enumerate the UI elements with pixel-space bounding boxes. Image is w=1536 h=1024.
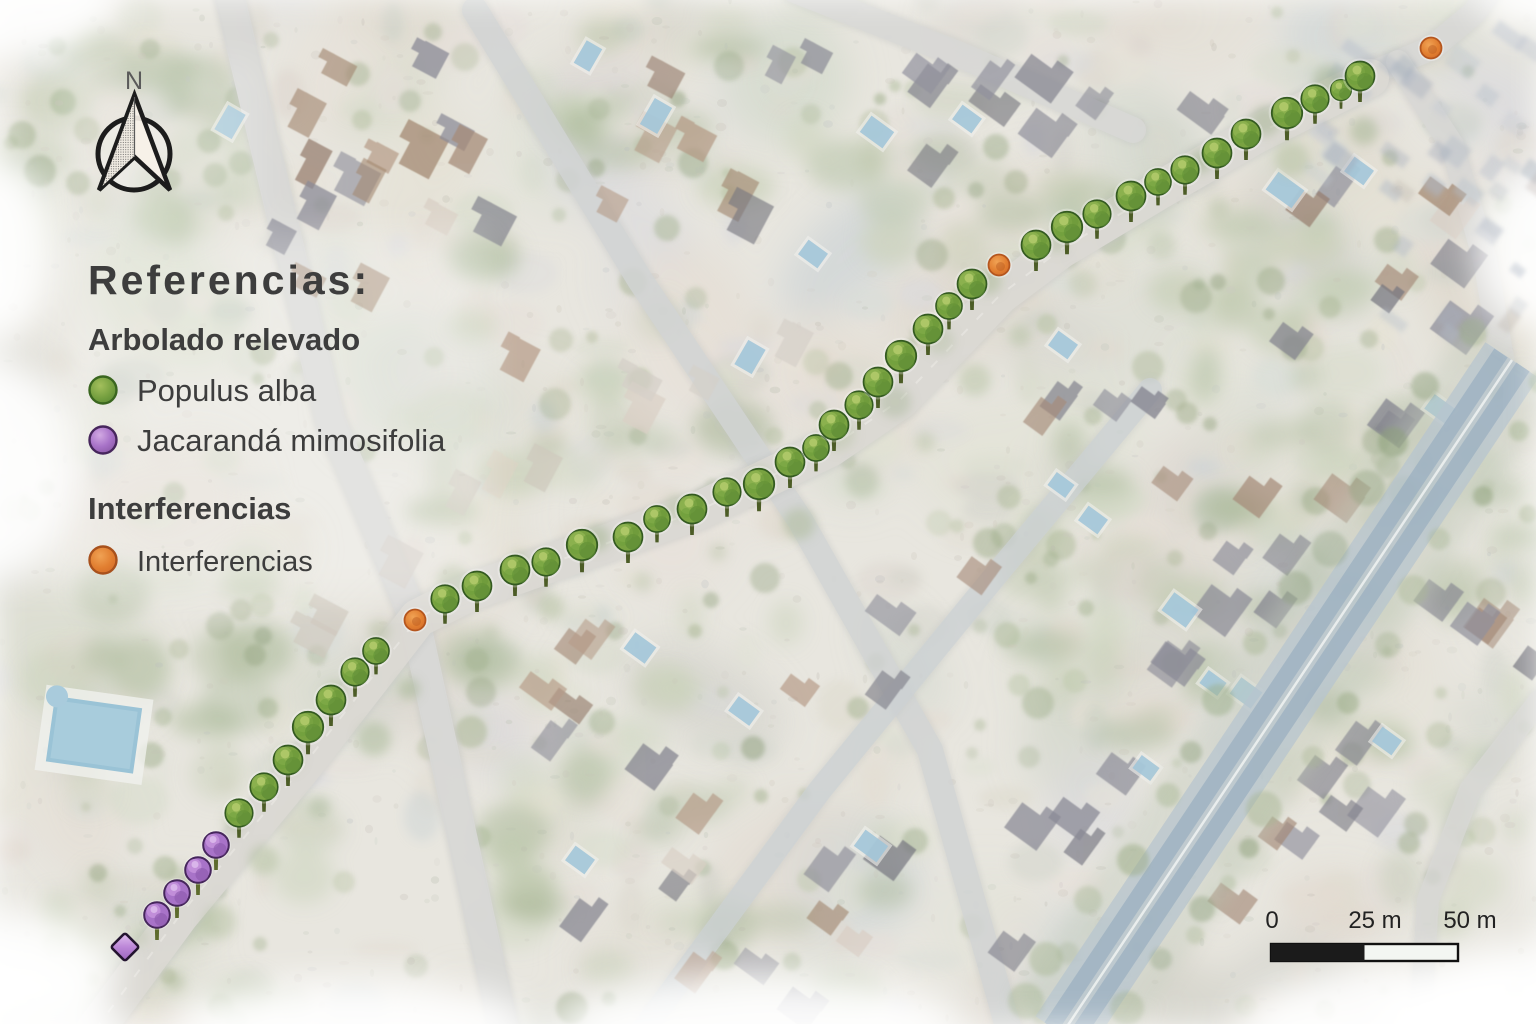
svg-text:Referencias:: Referencias:	[88, 257, 370, 303]
svg-text:Jacarandá mimosifolia: Jacarandá mimosifolia	[137, 423, 446, 458]
svg-text:Interferencias: Interferencias	[88, 491, 291, 526]
svg-text:50 m: 50 m	[1443, 907, 1496, 934]
svg-text:25 m: 25 m	[1348, 907, 1401, 934]
svg-text:Arbolado relevado: Arbolado relevado	[88, 322, 360, 357]
svg-text:0: 0	[1265, 907, 1278, 934]
svg-text:Populus alba: Populus alba	[137, 373, 317, 408]
svg-text:Interferencias: Interferencias	[137, 546, 313, 578]
